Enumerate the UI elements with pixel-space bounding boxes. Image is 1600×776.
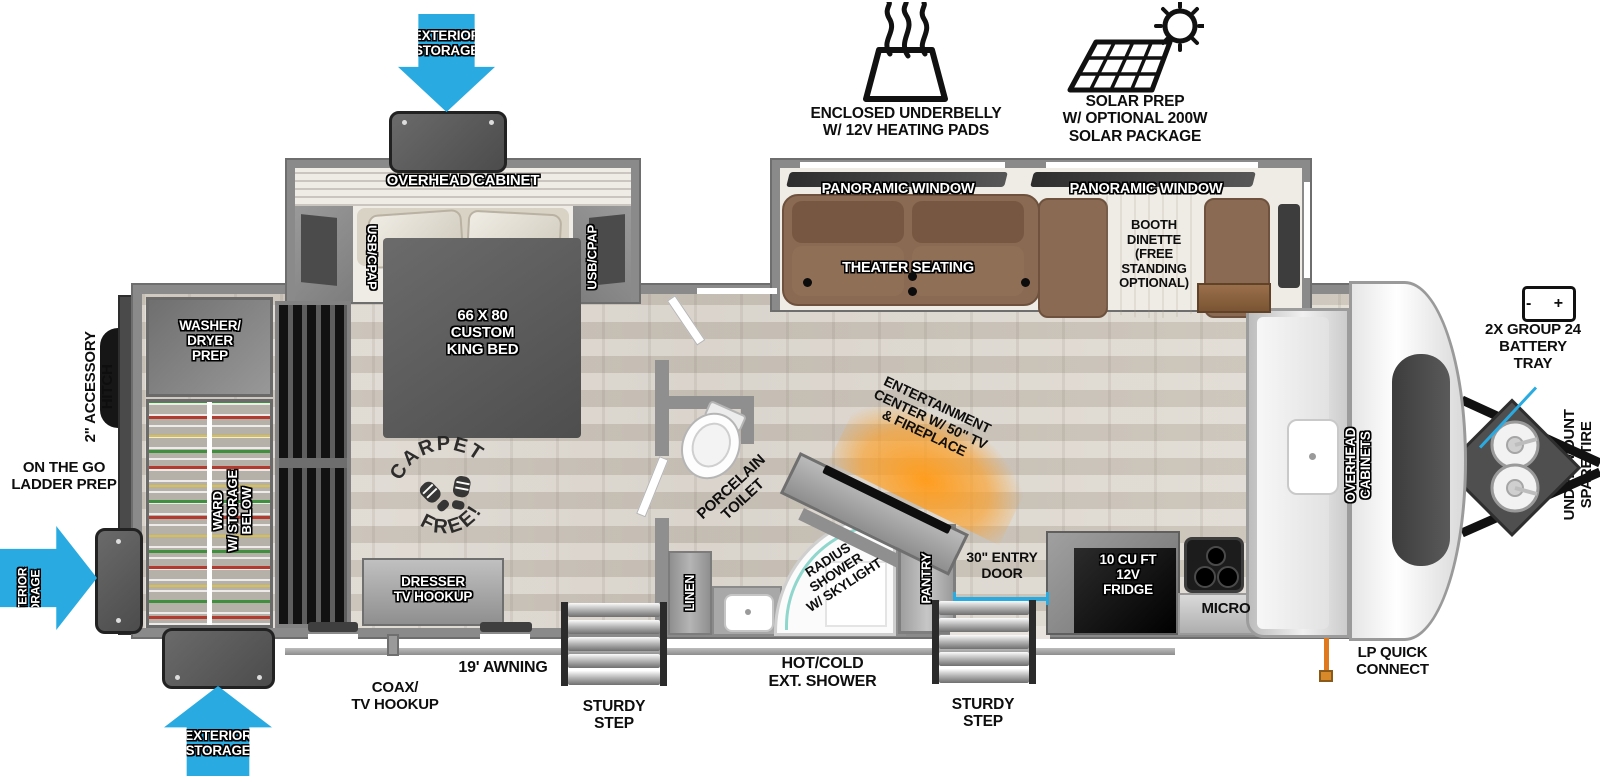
window-strip bbox=[480, 634, 530, 639]
window-strip bbox=[1046, 162, 1258, 168]
louvered-closet-doors bbox=[275, 301, 351, 628]
sturdy-step-label-right: STURDY STEP bbox=[930, 696, 1036, 731]
cupholder bbox=[1021, 278, 1030, 287]
lp-quick-connect-label: LP QUICK CONNECT bbox=[1340, 645, 1445, 679]
louver-divider bbox=[279, 458, 347, 468]
awning-label: 19' AWNING bbox=[443, 659, 563, 677]
kitchen-sink bbox=[1287, 419, 1339, 495]
sturdy-step-right bbox=[932, 600, 1036, 684]
cupholder bbox=[803, 278, 812, 287]
seat-back bbox=[912, 201, 1024, 243]
seat-back bbox=[792, 201, 904, 243]
measure-tick bbox=[1046, 592, 1049, 605]
solar-prep-icon bbox=[1062, 2, 1204, 96]
bathroom-sink bbox=[724, 594, 774, 632]
kitchen-counter bbox=[1246, 308, 1350, 638]
solar-prep-label: SOLAR PREP W/ OPTIONAL 200W SOLAR PACKAG… bbox=[1050, 93, 1220, 145]
dinette-bench bbox=[1038, 198, 1108, 318]
king-bed-label: 66 X 80 CUSTOM KING BED bbox=[395, 308, 570, 358]
exterior-storage-label-top: EXTERIOR STORAGE bbox=[410, 28, 483, 58]
linen-label: LINEN bbox=[683, 563, 697, 623]
exterior-storage-door-top bbox=[389, 111, 507, 173]
bedroom-window bbox=[480, 622, 532, 632]
bedroom-window bbox=[308, 622, 358, 632]
svg-text:FREE!: FREE! bbox=[413, 496, 492, 546]
wardrobe-label: WARD W/ STORAGE BELOW bbox=[211, 456, 255, 566]
exterior-storage-label-left: EXTERIOR STORAGE bbox=[17, 573, 44, 627]
nightstand-right bbox=[573, 206, 631, 302]
awning-rail bbox=[285, 648, 1175, 655]
carpet-free-bottom-text: FREE! bbox=[413, 496, 492, 546]
overhead-cabinets-label: OVERHEAD CABINETS bbox=[1343, 415, 1373, 515]
battery-tray-label: 2X GROUP 24 BATTERY TRAY bbox=[1466, 322, 1600, 372]
slide-end-window bbox=[1278, 204, 1300, 288]
booth-dinette-label: BOOTH DINETTE (FREE STANDING OPTIONAL) bbox=[1099, 218, 1209, 291]
panoramic-window-label-left: PANORAMIC WINDOW bbox=[788, 181, 1008, 197]
burner bbox=[1206, 546, 1226, 566]
usb-cpap-label-left: USB/CPAP bbox=[364, 209, 379, 305]
entry-door-label: 30" ENTRY DOOR bbox=[946, 550, 1058, 581]
cupholder bbox=[908, 287, 917, 296]
exterior-storage-door-left bbox=[95, 528, 143, 634]
window-strip bbox=[1304, 182, 1310, 278]
exterior-storage-arrow-bottom: EXTERIOR STORAGE bbox=[164, 686, 272, 776]
floorplan-diagram: EXTERIOR STORAGE ENCLOSED UNDERBELLY W/ … bbox=[0, 0, 1600, 776]
burner bbox=[1217, 566, 1239, 588]
sturdy-step-label-left: STURDY STEP bbox=[561, 698, 667, 733]
burner bbox=[1194, 566, 1216, 588]
lp-quick-connect-fitting bbox=[1319, 670, 1333, 682]
drain bbox=[745, 609, 751, 615]
window-strip bbox=[800, 162, 1005, 168]
micro-label: MICRO bbox=[1178, 601, 1274, 618]
front-cap-window bbox=[1392, 354, 1450, 566]
sturdy-step-left bbox=[561, 602, 667, 686]
panoramic-window-label-right: PANORAMIC WINDOW bbox=[1034, 181, 1258, 197]
boot-print bbox=[417, 479, 452, 514]
lp-quick-connect-line bbox=[1324, 636, 1329, 674]
drain bbox=[1309, 453, 1316, 460]
heating-pads-icon bbox=[853, 2, 958, 104]
fridge-label: 10 CU FT 12V FRIDGE bbox=[1078, 552, 1178, 597]
coax-tv-hookup-jack bbox=[387, 634, 399, 656]
exterior-storage-label-bottom: EXTERIOR STORAGE bbox=[176, 728, 260, 758]
cupholder bbox=[908, 272, 917, 281]
nightstand-left bbox=[295, 206, 353, 302]
exterior-storage-arrow-top: EXTERIOR STORAGE bbox=[398, 14, 495, 112]
exterior-storage-arrow-left: EXTERIOR STORAGE bbox=[0, 526, 97, 630]
battery-icon: - + bbox=[1522, 286, 1576, 322]
propane-tank bbox=[1492, 465, 1538, 511]
window-strip bbox=[697, 288, 777, 294]
exterior-storage-door-bottom bbox=[162, 628, 275, 689]
cooktop bbox=[1184, 537, 1244, 593]
ext-shower-label: HOT/COLD EXT. SHOWER bbox=[745, 655, 900, 691]
usb-cpap-label-right: USB/CPAP bbox=[586, 209, 601, 305]
enclosed-underbelly-label: ENCLOSED UNDERBELLY W/ 12V HEATING PADS bbox=[786, 105, 1026, 140]
dresser-label: DRESSER TV HOOKUP bbox=[362, 574, 504, 604]
ladder-prep-label: ON THE GO LADDER PREP bbox=[0, 460, 128, 494]
bedroom-window bbox=[301, 214, 337, 286]
overhead-cabinet-label: OVERHEAD CABINET bbox=[295, 173, 631, 190]
window-strip bbox=[308, 634, 358, 639]
coax-tv-hookup-label: COAX/ TV HOOKUP bbox=[345, 680, 445, 714]
accessory-hitch-label: 2" ACCESSORY HITCH bbox=[83, 315, 117, 459]
washer-dryer-prep-label: WASHER/ DRYER PREP bbox=[150, 318, 270, 363]
